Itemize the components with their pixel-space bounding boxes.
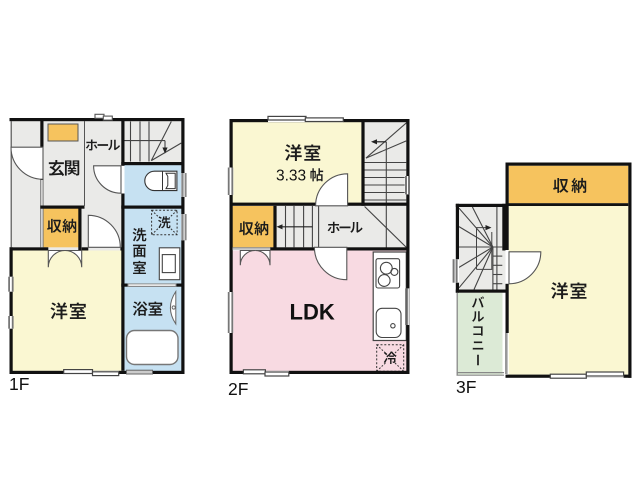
svg-text:1F: 1F [9,374,29,394]
svg-text:LDK: LDK [290,300,335,325]
svg-text:2F: 2F [228,379,248,399]
svg-text:3.33: 3.33 [276,168,306,185]
svg-text:3F: 3F [456,377,476,397]
